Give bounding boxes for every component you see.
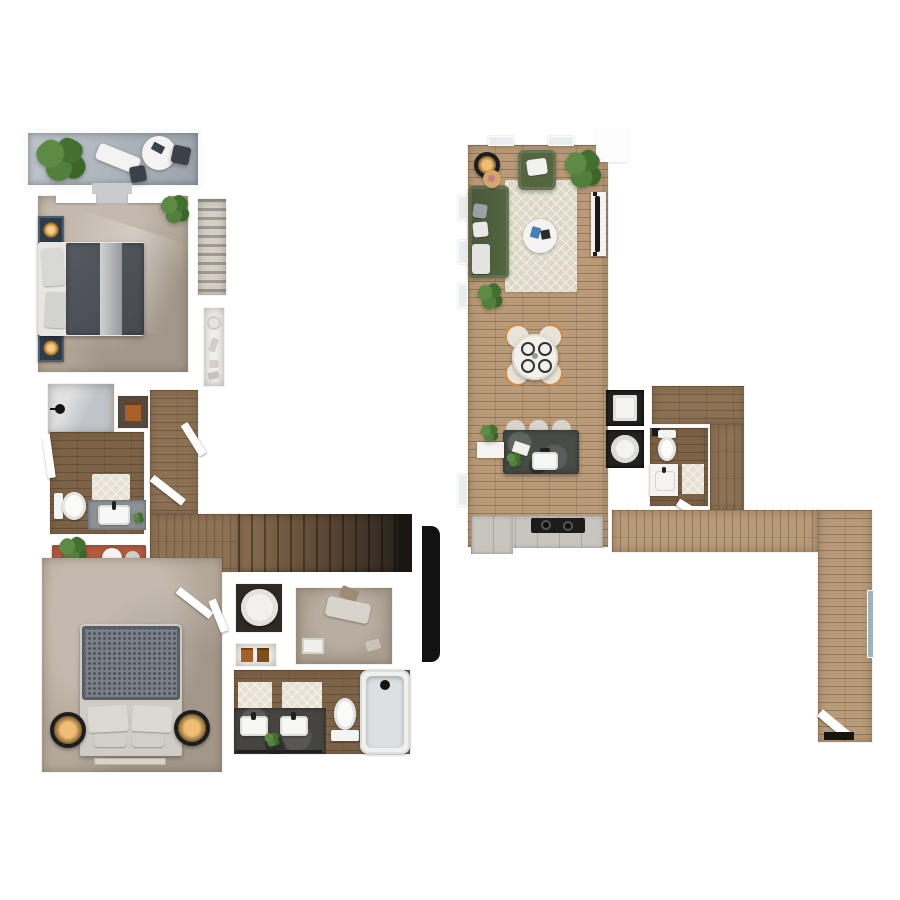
kitchen-counter-return [471, 516, 513, 554]
place-setting-icon [521, 359, 535, 373]
laundry-cabinet [606, 390, 644, 426]
window [458, 240, 468, 264]
armchair-pillow [526, 158, 548, 177]
faucet-icon [662, 467, 666, 473]
wall-step [596, 128, 628, 162]
place-setting-icon [538, 342, 552, 356]
faucet-icon [540, 448, 550, 452]
entry-threshold [824, 732, 854, 740]
coffee-table [523, 219, 557, 253]
living-plant-icon [477, 282, 503, 312]
book-icon [540, 229, 550, 239]
window [488, 136, 514, 146]
window [458, 196, 468, 220]
laundry-cabinet [606, 430, 644, 468]
speaker-icon [593, 252, 597, 256]
entry-hall-floor [818, 510, 872, 742]
sectional-sofa [469, 186, 509, 278]
counter-plant-icon [480, 424, 499, 443]
tv-console [591, 192, 606, 256]
kitchen-island [503, 430, 579, 474]
burner-icon [541, 520, 551, 530]
wing-corridor [652, 386, 744, 424]
cooktop [531, 518, 585, 533]
island-plant-icon [506, 452, 522, 468]
phone-icon [530, 226, 542, 239]
living-plant-icon [564, 148, 602, 192]
toilet-icon [658, 437, 676, 461]
powder-vanity [650, 464, 678, 496]
wall-mirror-icon [867, 590, 874, 658]
centerpiece-icon [532, 353, 538, 359]
washer-icon [613, 395, 637, 421]
side-counter [477, 442, 504, 458]
burner-icon [563, 521, 573, 531]
side-table-item-icon [488, 175, 495, 182]
entry-hall-floor [612, 510, 818, 552]
sofa-blanket [472, 244, 490, 274]
floor-plan-canvas [0, 0, 900, 900]
sofa-pillow [472, 221, 488, 237]
wing-corridor [710, 424, 744, 512]
powder-rug [682, 464, 704, 494]
tv-icon [595, 196, 600, 252]
window [458, 474, 468, 506]
place-setting-icon [538, 359, 552, 373]
island-sink [532, 452, 558, 470]
window [458, 284, 468, 308]
dining-table [512, 334, 558, 380]
floor-plan-living-level [0, 0, 900, 900]
speaker-icon [593, 192, 597, 196]
side-table-icon [483, 170, 501, 188]
dryer-drum-icon [611, 435, 639, 463]
armchair [518, 150, 556, 190]
window [548, 136, 574, 146]
sofa-pillow [472, 203, 488, 219]
vanity-basin-line [655, 471, 675, 491]
